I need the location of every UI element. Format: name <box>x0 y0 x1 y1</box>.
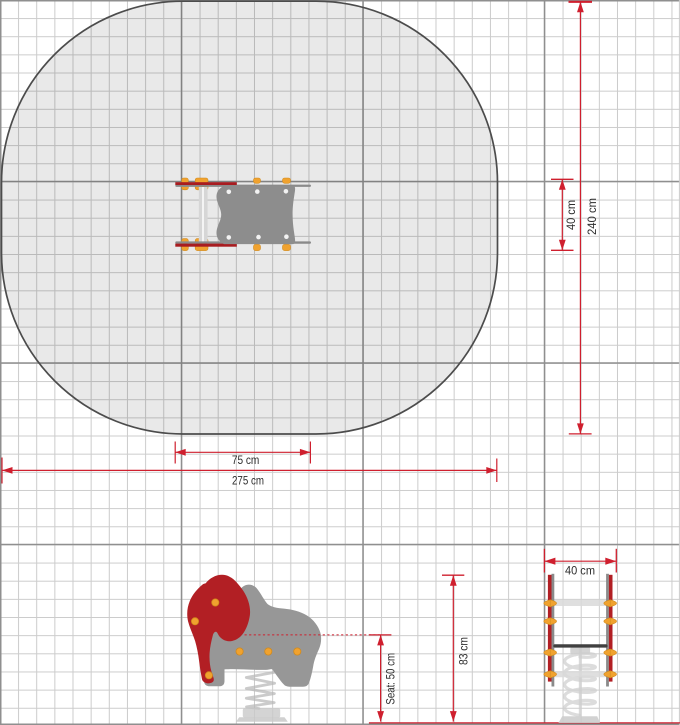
svg-text:240 cm: 240 cm <box>586 198 599 235</box>
svg-text:275 cm: 275 cm <box>232 474 264 487</box>
svg-text:83 cm: 83 cm <box>458 637 471 665</box>
svg-text:40 cm: 40 cm <box>565 565 595 578</box>
svg-text:Seat: 50 cm: Seat: 50 cm <box>385 653 398 705</box>
svg-text:75 cm: 75 cm <box>232 454 260 467</box>
svg-text:40 cm: 40 cm <box>565 200 578 230</box>
